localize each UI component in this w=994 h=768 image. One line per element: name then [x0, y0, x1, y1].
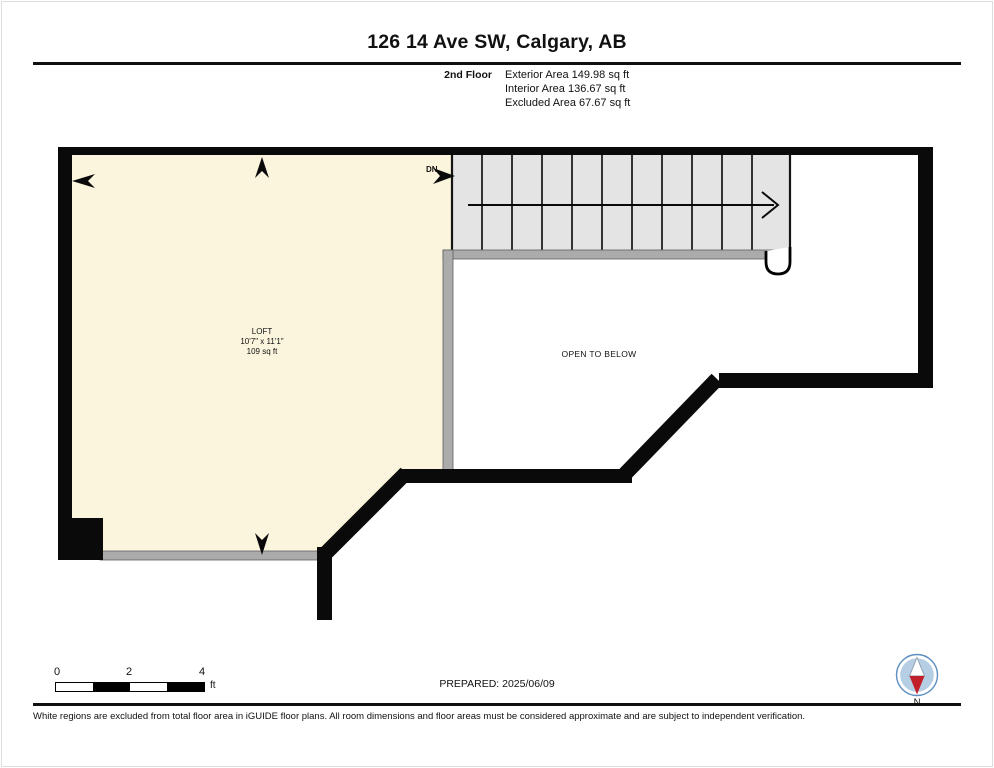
- wall-bottom-right: [719, 373, 933, 388]
- wall-top: [58, 147, 933, 155]
- scale-tick-4: 4: [199, 666, 205, 678]
- staircase: [452, 155, 790, 250]
- railing-loft-bottom: [100, 551, 320, 560]
- loft-room-dimensions: 10'7" x 11'1": [240, 337, 283, 347]
- open-to-below-label: OPEN TO BELOW: [562, 349, 637, 359]
- scale-tick-2: 2: [126, 666, 132, 678]
- loft-room-area: 109 sq ft: [240, 347, 283, 357]
- disclaimer-text: White regions are excluded from total fl…: [33, 711, 963, 722]
- wall-diagonal-right: [625, 379, 717, 474]
- stair-body: [452, 155, 790, 250]
- wall-bottom-mid: [399, 469, 632, 483]
- railing-under-stairs: [443, 250, 783, 259]
- loft-room-name: LOFT: [240, 327, 283, 337]
- footer-divider: [33, 703, 961, 706]
- handrail-end: [766, 247, 790, 274]
- prepared-date: PREPARED: 2025/06/09: [0, 678, 994, 690]
- wall-right: [918, 147, 933, 388]
- wall-left: [58, 147, 72, 522]
- stairs-down-label: DN: [426, 165, 438, 174]
- railing-open-to-below: [443, 250, 453, 472]
- floor-plan: [0, 0, 994, 768]
- loft-room-label: LOFT 10'7" x 11'1" 109 sq ft: [240, 327, 283, 357]
- scale-tick-0: 0: [54, 666, 60, 678]
- wall-corner-block: [58, 518, 103, 560]
